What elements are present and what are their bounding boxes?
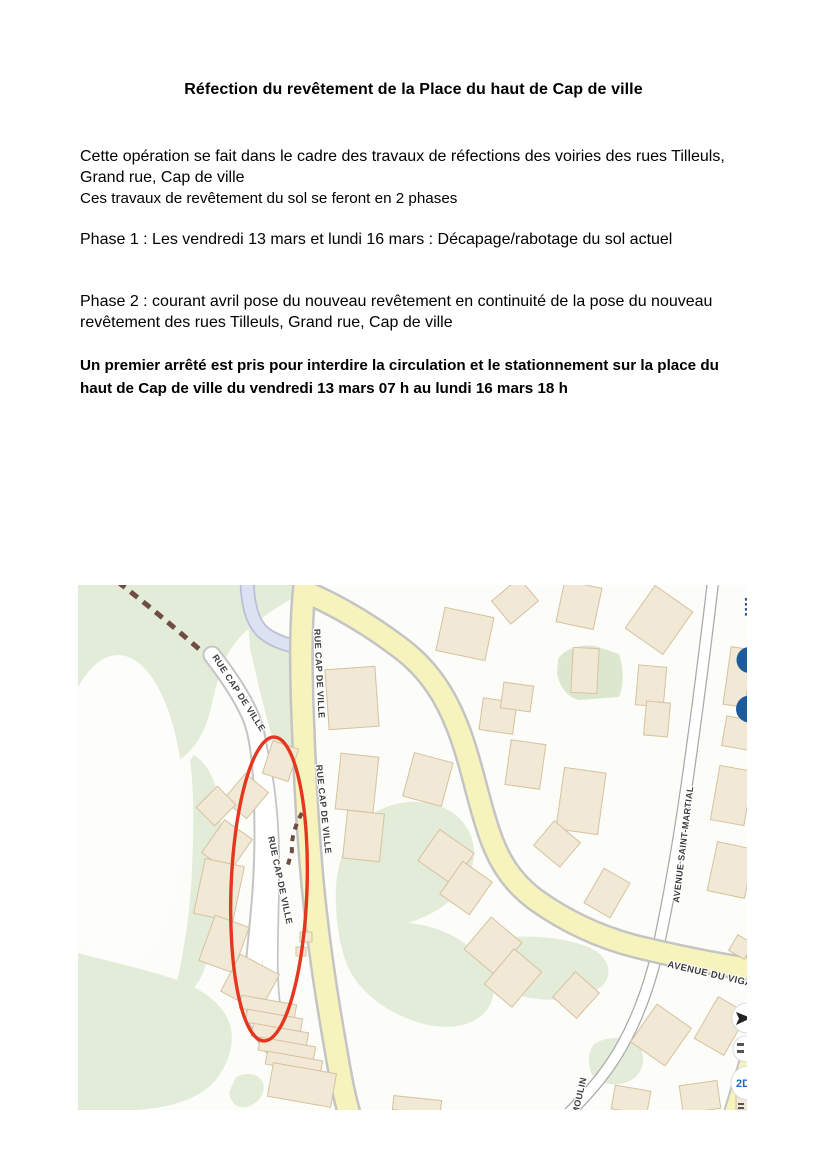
paragraph-phase2: Phase 2 : courant avril pose du nouveau …	[80, 291, 730, 333]
paragraph-intro-line2: Ces travaux de revêtement du sol se fero…	[80, 188, 756, 209]
map-control-2d-label: 2D	[736, 1078, 747, 1090]
paragraph-phase1: Phase 1 : Les vendredi 13 mars et lundi …	[80, 229, 695, 250]
scale-marks-icon	[738, 1103, 744, 1105]
layers-icon	[737, 1050, 744, 1053]
paragraph-intro: Cette opération se fait dans le cadre de…	[80, 146, 756, 188]
document-title: Réfection du revêtement de la Place du h…	[0, 81, 827, 99]
scale-marks-icon	[738, 1107, 744, 1109]
paragraph-arrete-notice: Un premier arrêté est pris pour interdir…	[80, 354, 730, 400]
document-page: Réfection du revêtement de la Place du h…	[0, 0, 827, 1169]
layers-icon	[737, 1043, 744, 1046]
map-image: RUE CAP DE VILLE RUE CAP DE VILLE RUE CA…	[78, 585, 747, 1110]
map-canvas: RUE CAP DE VILLE RUE CAP DE VILLE RUE CA…	[78, 585, 747, 1110]
